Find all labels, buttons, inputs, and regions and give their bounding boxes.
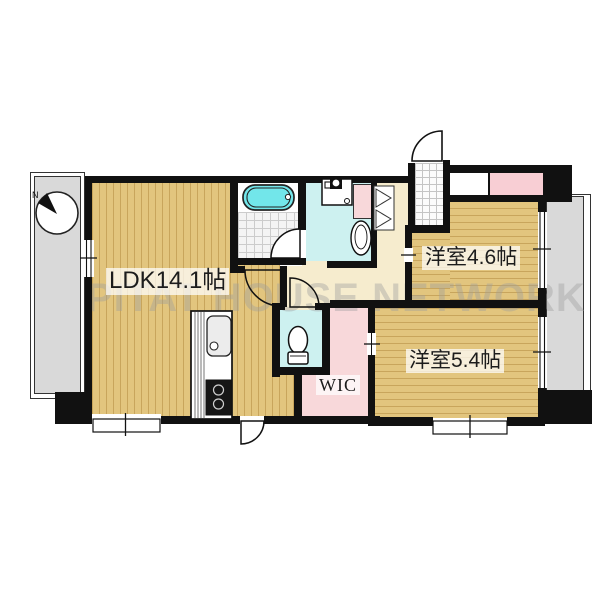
floorplan-canvas: PITAT HOUSE NETWORK N — [0, 0, 600, 600]
window-bedroom2-bottom — [433, 415, 507, 438]
toilet-icon — [288, 327, 308, 365]
washbasin-icon — [351, 221, 371, 255]
stove-icon — [206, 380, 231, 415]
window-bedroom1-balcony — [533, 212, 551, 288]
compass-icon: N — [32, 190, 78, 234]
room-label-wic: WIC — [316, 375, 360, 395]
laundry-faucet-icon — [330, 177, 342, 189]
bathroom-door-swing — [271, 229, 300, 258]
kitchen-sink-icon — [207, 316, 231, 356]
bathtub-icon — [243, 185, 294, 210]
fixtures-overlay: N — [0, 0, 600, 600]
window-ldk-bottom — [92, 413, 161, 436]
ldk-door-swing — [245, 270, 281, 306]
toilet-door-swing — [290, 278, 319, 307]
room-label-bedroom1: 洋室4.6帖 — [422, 246, 520, 270]
doorway-bedroom1 — [401, 248, 416, 262]
doorway-bedroom2 — [364, 333, 380, 355]
window-bedroom2-balcony — [533, 317, 551, 388]
room-label-bedroom2: 洋室5.4帖 — [406, 349, 504, 373]
hall-closet-doors-icon — [374, 186, 394, 230]
entrance-door-swing — [412, 131, 442, 161]
compass-label: N — [32, 190, 39, 200]
room-label-ldk: LDK14.1帖 — [106, 268, 229, 295]
window-ldk-balcony — [80, 240, 97, 277]
service-door-swing — [241, 421, 264, 444]
